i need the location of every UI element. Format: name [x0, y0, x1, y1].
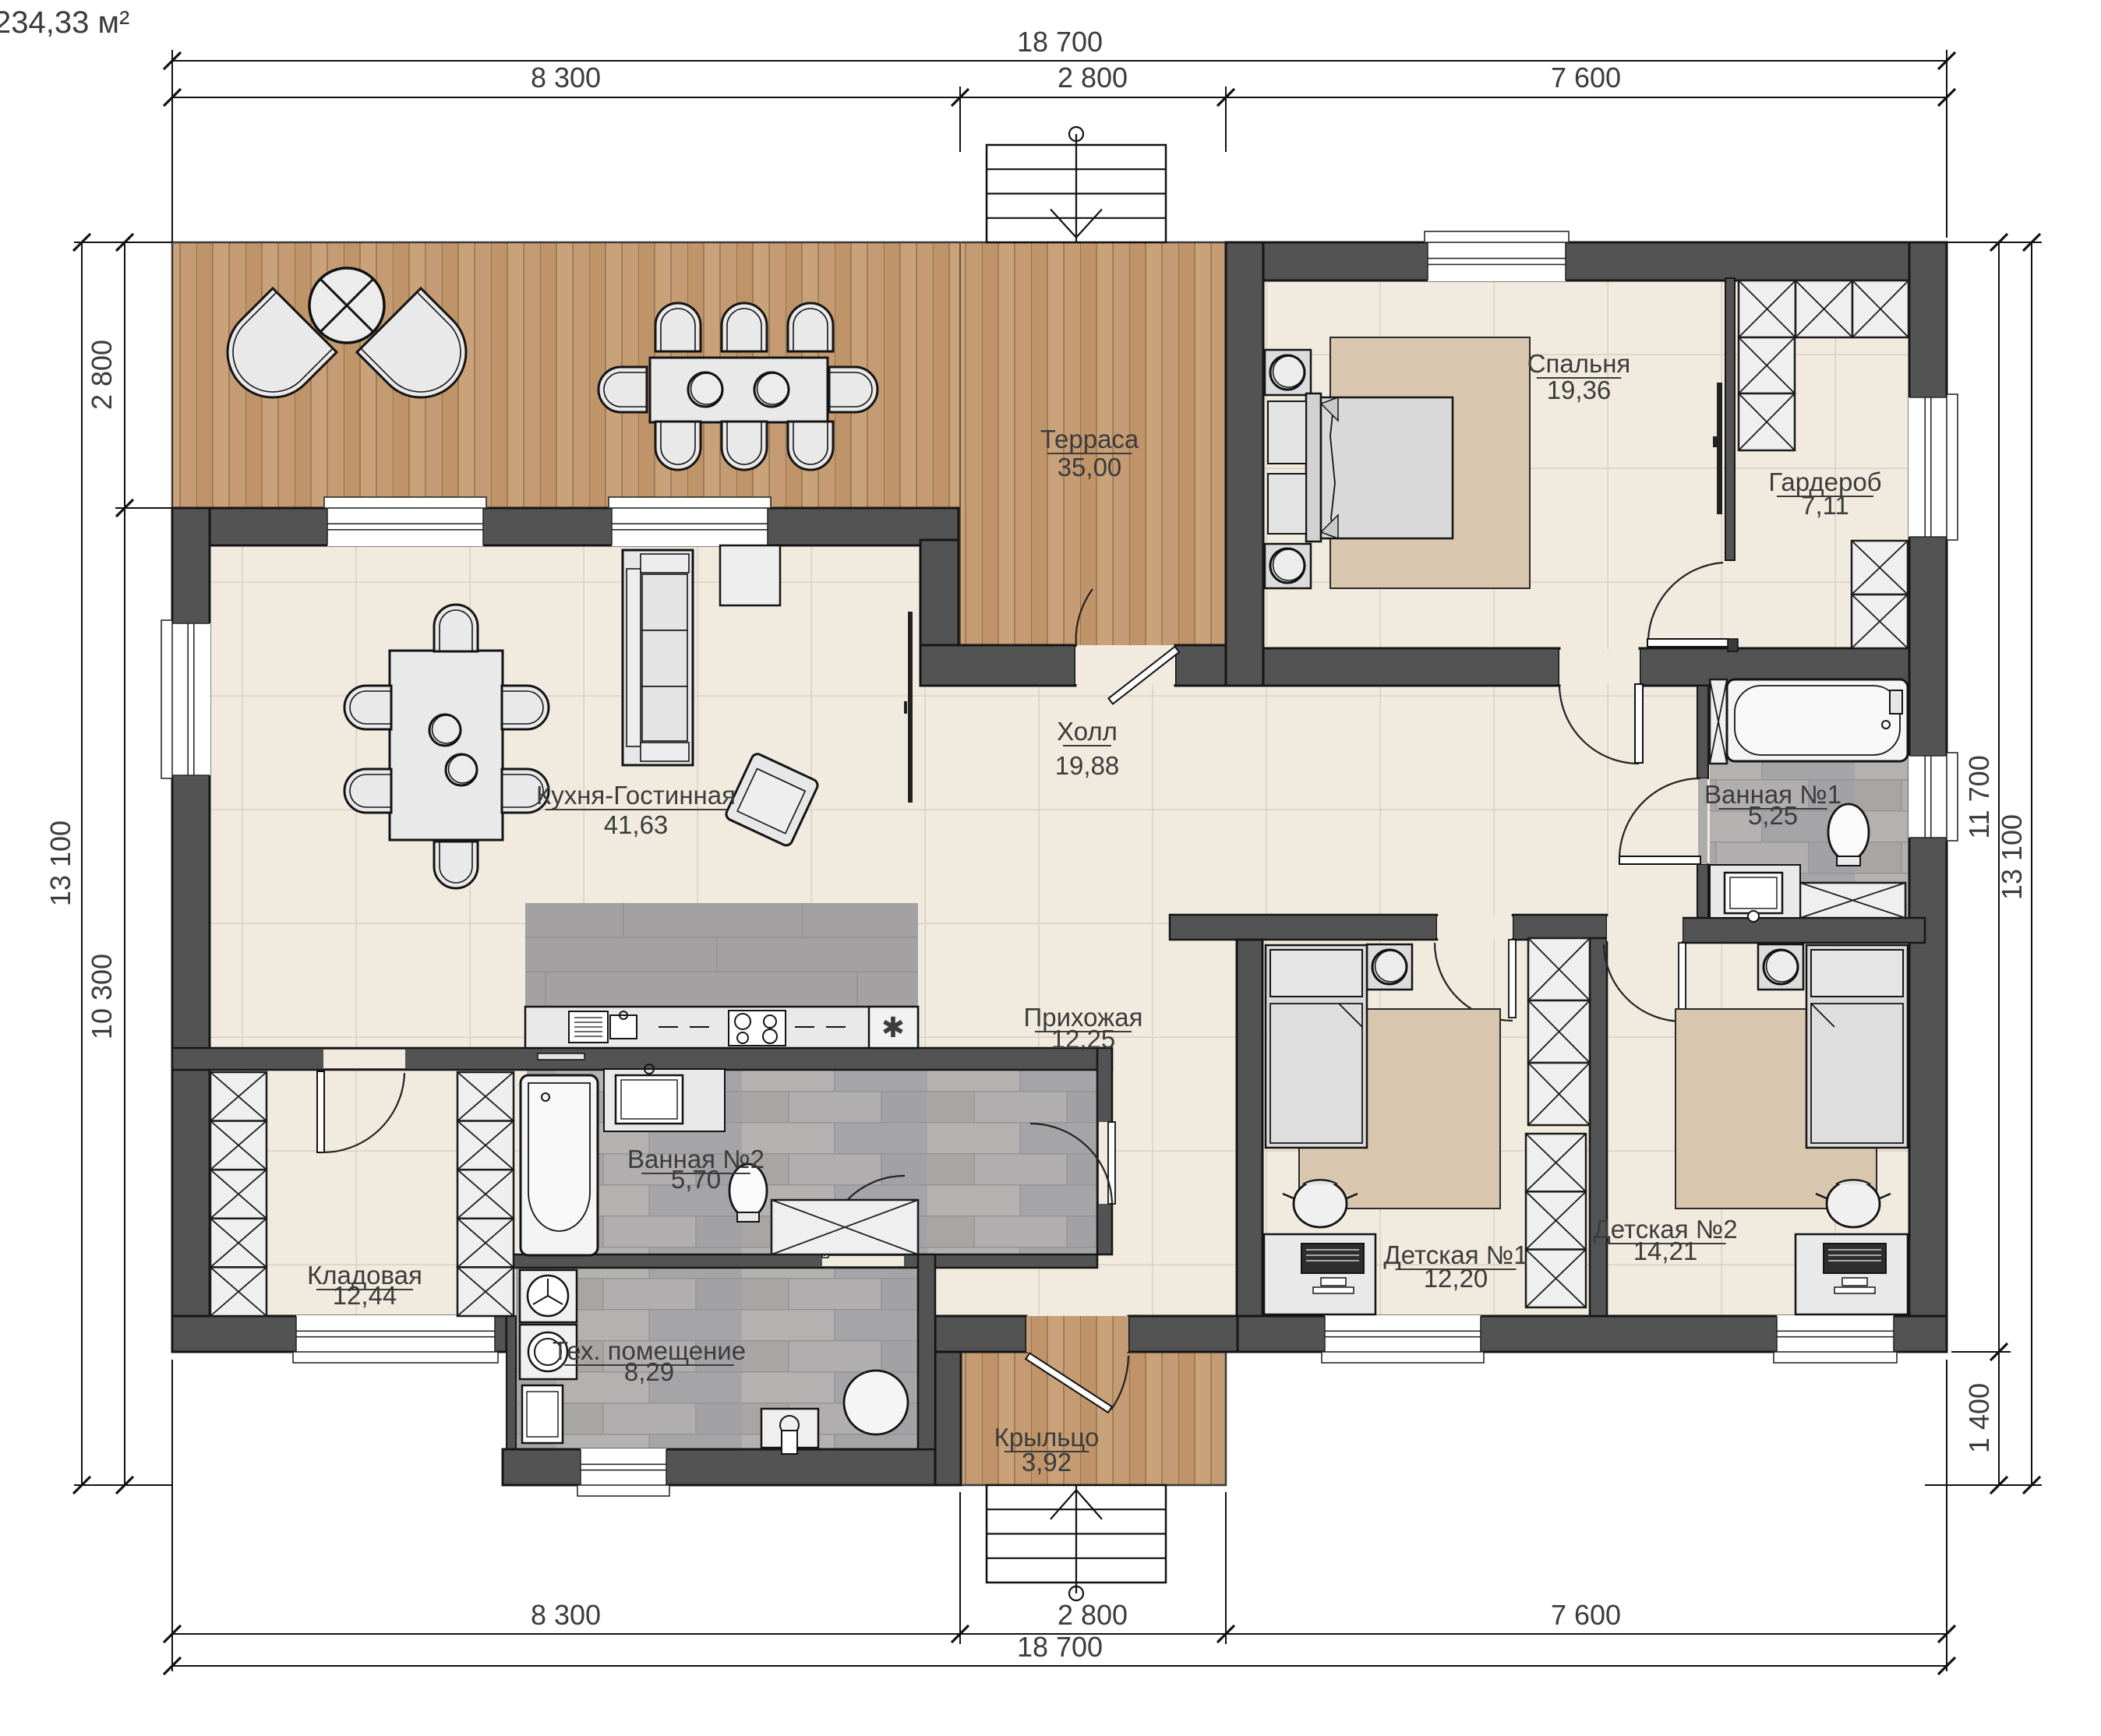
svg-text:234,33 м²: 234,33 м²	[0, 5, 129, 40]
svg-text:Холл: Холл	[1057, 717, 1118, 746]
svg-text:8 300: 8 300	[531, 62, 601, 94]
svg-text:3,92: 3,92	[1022, 1448, 1072, 1477]
svg-text:5,70: 5,70	[671, 1165, 721, 1194]
svg-text:✱: ✱	[881, 1011, 905, 1043]
svg-text:12,25: 12,25	[1051, 1025, 1116, 1053]
svg-text:12,20: 12,20	[1424, 1264, 1488, 1293]
svg-text:41,63: 41,63	[604, 810, 669, 839]
svg-text:2 800: 2 800	[86, 340, 118, 410]
svg-text:18 700: 18 700	[1017, 1631, 1103, 1663]
svg-text:14,21: 14,21	[1633, 1237, 1698, 1265]
svg-text:Кухня-Гостинная: Кухня-Гостинная	[536, 781, 736, 810]
svg-text:2 800: 2 800	[1058, 62, 1128, 94]
svg-text:Терраса: Терраса	[1040, 425, 1139, 453]
svg-text:35,00: 35,00	[1058, 453, 1122, 482]
svg-text:19,36: 19,36	[1547, 376, 1612, 404]
svg-text:11 700: 11 700	[1963, 755, 1995, 838]
svg-text:7 600: 7 600	[1551, 1599, 1621, 1631]
svg-text:5,25: 5,25	[1748, 801, 1798, 830]
svg-text:18 700: 18 700	[1017, 26, 1103, 58]
svg-text:13 100: 13 100	[1996, 814, 2028, 900]
svg-text:2 800: 2 800	[1058, 1599, 1128, 1631]
svg-text:Спальня: Спальня	[1527, 349, 1631, 378]
svg-text:19,88: 19,88	[1055, 751, 1120, 780]
svg-text:13 100: 13 100	[44, 820, 76, 906]
svg-text:7 600: 7 600	[1551, 62, 1621, 94]
svg-text:7,11: 7,11	[1801, 491, 1849, 520]
svg-text:1 400: 1 400	[1963, 1383, 1995, 1453]
svg-text:8,29: 8,29	[624, 1357, 674, 1386]
svg-text:10 300: 10 300	[86, 954, 118, 1039]
svg-text:12,44: 12,44	[333, 1281, 397, 1310]
svg-text:8 300: 8 300	[531, 1599, 601, 1631]
